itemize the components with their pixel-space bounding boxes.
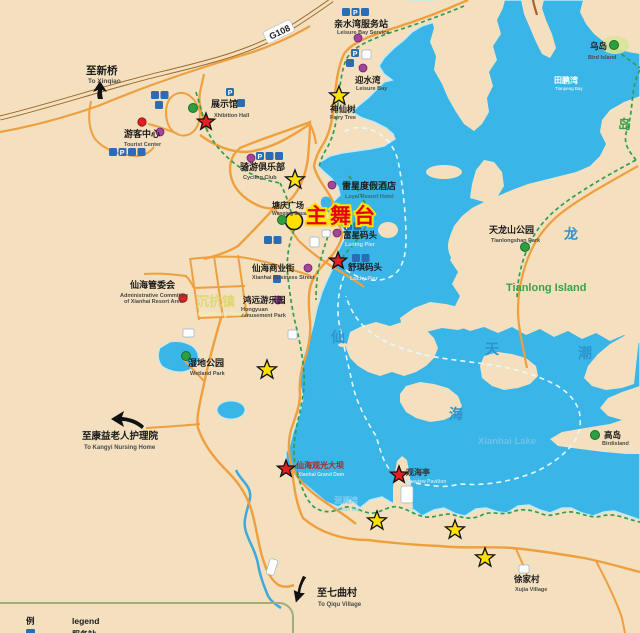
svg-text:至七曲村: 至七曲村 bbox=[317, 586, 357, 599]
svg-text:P: P bbox=[353, 10, 358, 17]
svg-text:沉抗镇: 沉抗镇 bbox=[196, 294, 235, 309]
svg-text:Amusement Park: Amusement Park bbox=[241, 313, 287, 319]
svg-text:P: P bbox=[228, 90, 233, 97]
svg-text:Luxing Pier: Luxing Pier bbox=[345, 242, 376, 248]
svg-text:天: 天 bbox=[485, 341, 500, 357]
svg-text:Tianpeng Bay: Tianpeng Bay bbox=[555, 86, 583, 91]
svg-text:海: 海 bbox=[449, 406, 463, 422]
svg-text:Fairy Tree: Fairy Tree bbox=[330, 115, 356, 121]
svg-text:of Xianhai Resort Area: of Xianhai Resort Area bbox=[124, 299, 184, 305]
svg-text:Xianhai Lake: Xianhai Lake bbox=[478, 436, 536, 447]
svg-text:鸿远游乐园: 鸿远游乐园 bbox=[243, 295, 286, 305]
svg-text:服务站: 服务站 bbox=[72, 629, 96, 633]
svg-text:观海亭: 观海亭 bbox=[406, 467, 430, 477]
svg-text:Bird Island: Bird Island bbox=[588, 55, 616, 61]
svg-text:Seaview Pavilion: Seaview Pavilion bbox=[406, 479, 446, 485]
svg-text:游客中心: 游客中心 bbox=[124, 128, 160, 139]
svg-text:至新桥: 至新桥 bbox=[86, 64, 118, 77]
svg-text:Xujia Village: Xujia Village bbox=[515, 587, 547, 593]
svg-text:龙: 龙 bbox=[563, 226, 578, 242]
svg-text:Leisure Bay Service: Leisure Bay Service bbox=[337, 30, 389, 36]
svg-text:legend: legend bbox=[72, 616, 99, 626]
svg-text:P: P bbox=[120, 150, 125, 157]
svg-text:Tianlong Island: Tianlong Island bbox=[506, 282, 586, 294]
svg-text:Cycling Club: Cycling Club bbox=[243, 175, 277, 181]
svg-text:Birdisland: Birdisland bbox=[602, 441, 629, 447]
svg-text:岛: 岛 bbox=[618, 117, 631, 132]
svg-text:至康益老人护理院: 至康益老人护理院 bbox=[82, 430, 159, 442]
svg-text:徐家村: 徐家村 bbox=[513, 574, 540, 584]
svg-text:Wetland Park: Wetland Park bbox=[190, 371, 226, 377]
svg-text:Xhibition Hall: Xhibition Hall bbox=[214, 113, 250, 119]
svg-text:仙海管委会: 仙海管委会 bbox=[130, 279, 176, 290]
svg-text:仙: 仙 bbox=[331, 329, 345, 345]
svg-text:展示馆: 展示馆 bbox=[211, 98, 238, 109]
svg-text:Chenkang Town: Chenkang Town bbox=[198, 312, 244, 318]
svg-text:Lucky Pier: Lucky Pier bbox=[350, 276, 379, 282]
svg-text:Tianlongshan Park: Tianlongshan Park bbox=[491, 238, 541, 244]
svg-text:乌岛: 乌岛 bbox=[590, 41, 607, 51]
svg-text:仙海商业街: 仙海商业街 bbox=[252, 263, 295, 273]
svg-text:迎水湾: 迎水湾 bbox=[355, 75, 381, 85]
svg-text:例: 例 bbox=[26, 616, 35, 626]
svg-text:塘庆广场: 塘庆广场 bbox=[272, 200, 304, 210]
svg-text:To Kangyi Nursing Home: To Kangyi Nursing Home bbox=[84, 445, 156, 451]
svg-text:田鹏湾: 田鹏湾 bbox=[554, 75, 578, 85]
svg-text:仙海观光大坝: 仙海观光大坝 bbox=[296, 460, 344, 470]
svg-text:Xianhai Grand Dam: Xianhai Grand Dam bbox=[298, 472, 345, 478]
svg-text:Xianhai Business Street: Xianhai Business Street bbox=[252, 275, 315, 281]
svg-text:P: P bbox=[353, 51, 358, 58]
svg-text:湿地公园: 湿地公园 bbox=[188, 357, 224, 368]
svg-text:神仙树: 神仙树 bbox=[330, 104, 356, 114]
svg-text:Leisure Bay: Leisure Bay bbox=[356, 86, 388, 92]
svg-text:潮: 潮 bbox=[578, 345, 592, 361]
svg-text:To Xinqiao: To Xinqiao bbox=[88, 78, 121, 85]
svg-text:Huilan Bay: Huilan Bay bbox=[336, 507, 361, 513]
svg-text:洄澜湾: 洄澜湾 bbox=[334, 495, 358, 505]
svg-text:雷星度假酒店: 雷星度假酒店 bbox=[342, 180, 396, 191]
svg-text:天龙山公园: 天龙山公园 bbox=[489, 224, 534, 235]
svg-text:亲水湾服务站: 亲水湾服务站 bbox=[334, 18, 388, 29]
svg-text:富星码头: 富星码头 bbox=[343, 230, 378, 240]
svg-text:舒琪码头: 舒琪码头 bbox=[347, 262, 383, 272]
svg-text:主舞台: 主舞台 bbox=[306, 204, 378, 228]
svg-text:P: P bbox=[258, 154, 263, 161]
svg-text:Loyal Resort Hotel: Loyal Resort Hotel bbox=[345, 194, 394, 200]
svg-text:高岛: 高岛 bbox=[604, 430, 621, 440]
svg-text:骑游俱乐部: 骑游俱乐部 bbox=[240, 161, 285, 172]
svg-text:Tourist Center: Tourist Center bbox=[124, 142, 162, 148]
svg-text:To Qiqu Village: To Qiqu Village bbox=[318, 602, 362, 608]
